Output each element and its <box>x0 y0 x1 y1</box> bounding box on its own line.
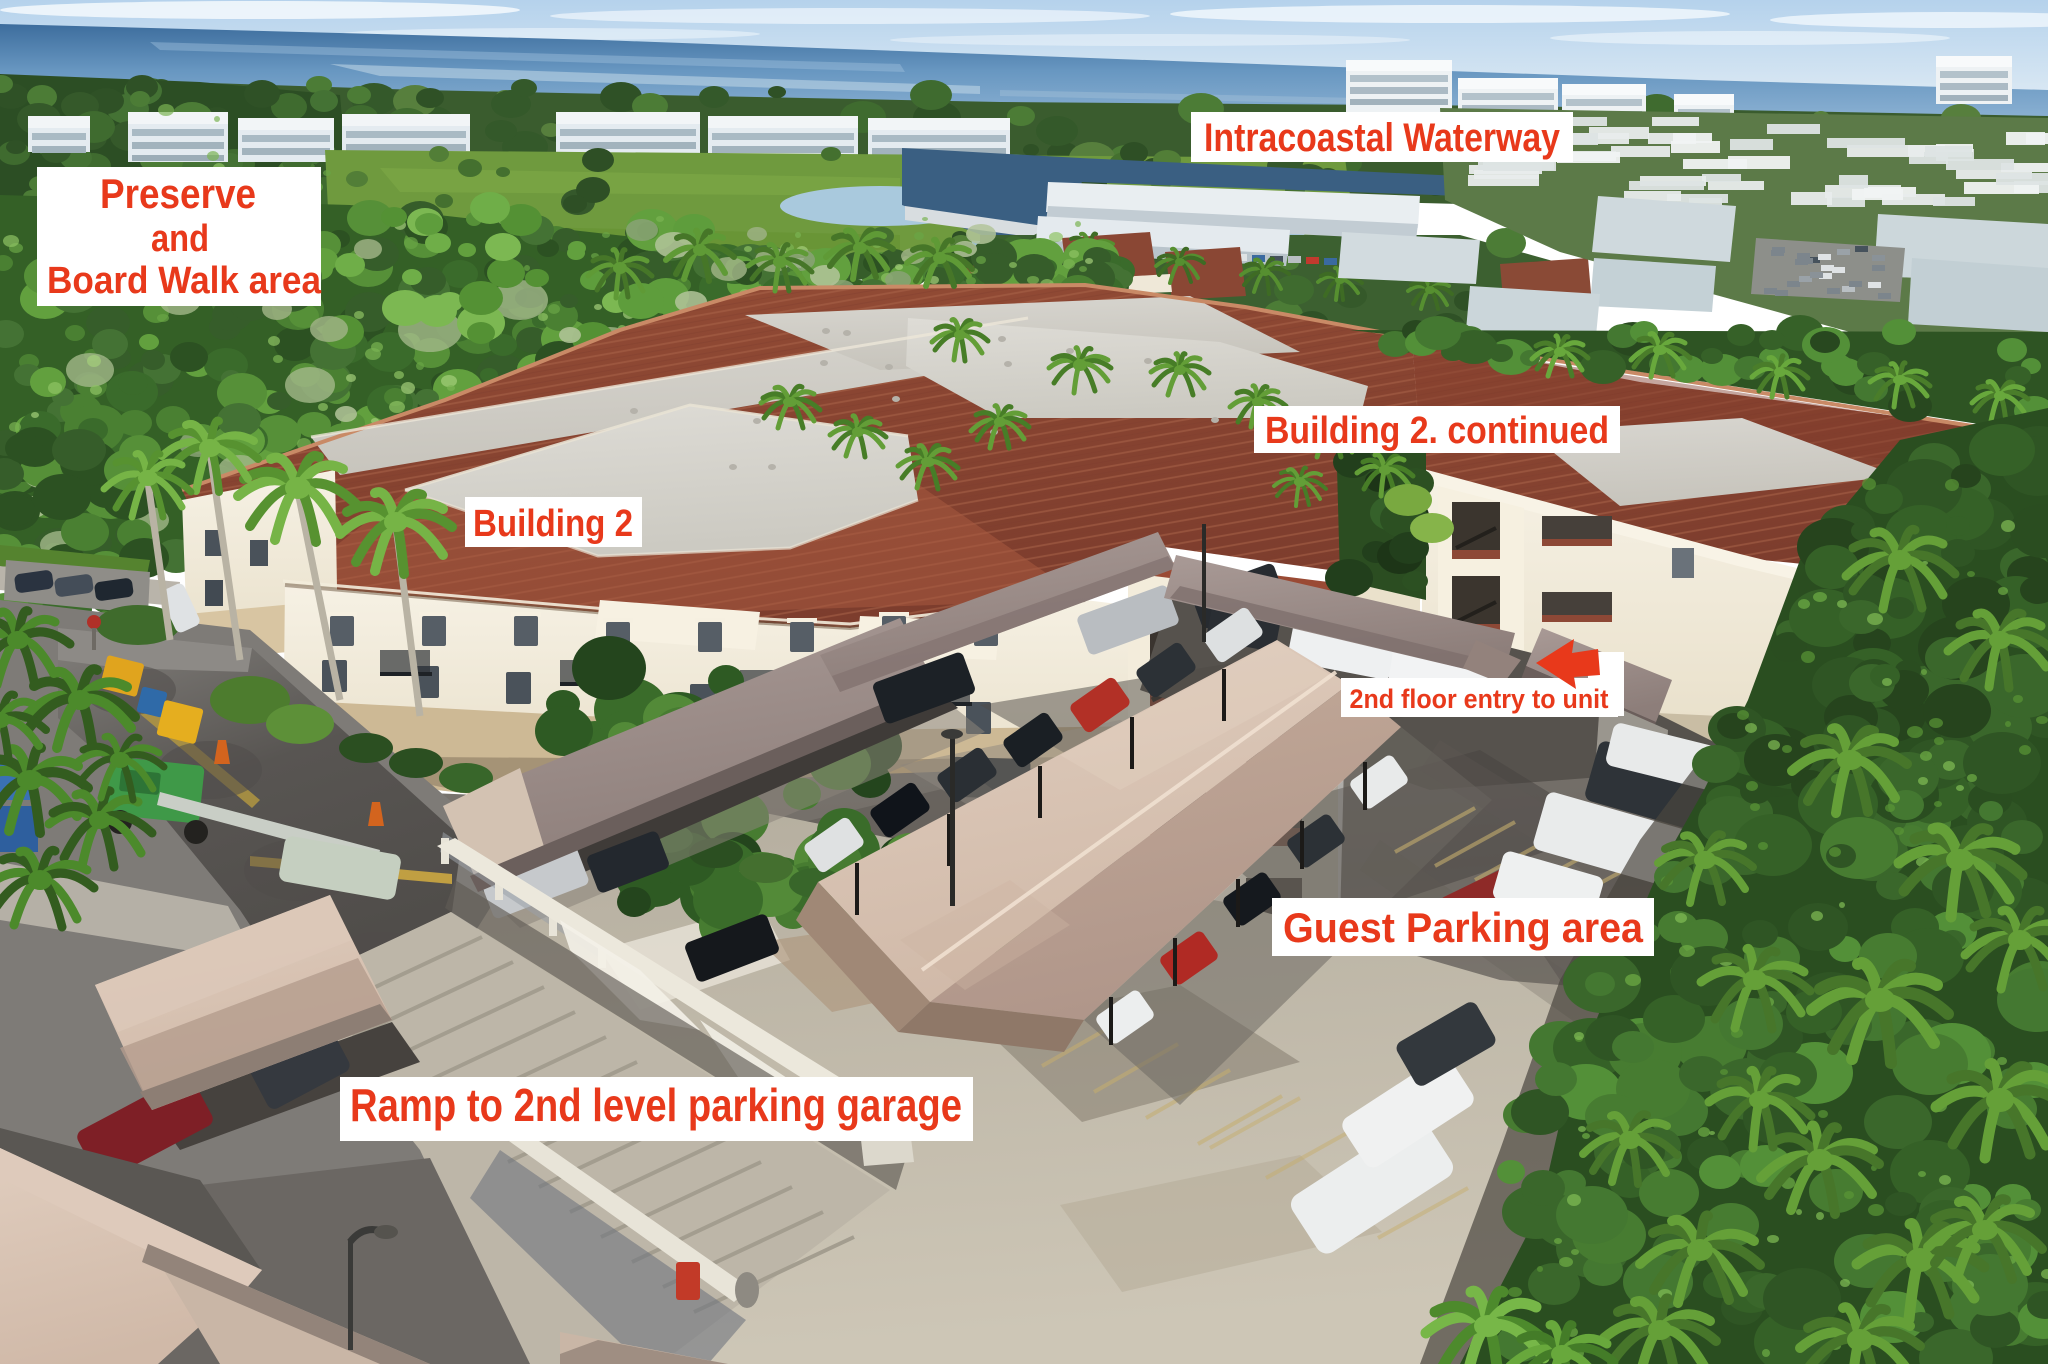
svg-text:Guest Parking area: Guest Parking area <box>1283 904 1644 951</box>
svg-text:and: and <box>151 218 209 260</box>
svg-text:Intracoastal Waterway: Intracoastal Waterway <box>1204 116 1561 160</box>
svg-text:Board Walk area: Board Walk area <box>47 260 322 302</box>
svg-text:2nd floor entry to unit: 2nd floor entry to unit <box>1350 684 1609 714</box>
svg-text:Building 2: Building 2 <box>473 503 633 545</box>
svg-text:Building 2. continued: Building 2. continued <box>1265 410 1609 452</box>
svg-text:Preserve: Preserve <box>100 170 256 217</box>
svg-text:Ramp to 2nd level parking gara: Ramp to 2nd level parking garage <box>350 1079 962 1131</box>
